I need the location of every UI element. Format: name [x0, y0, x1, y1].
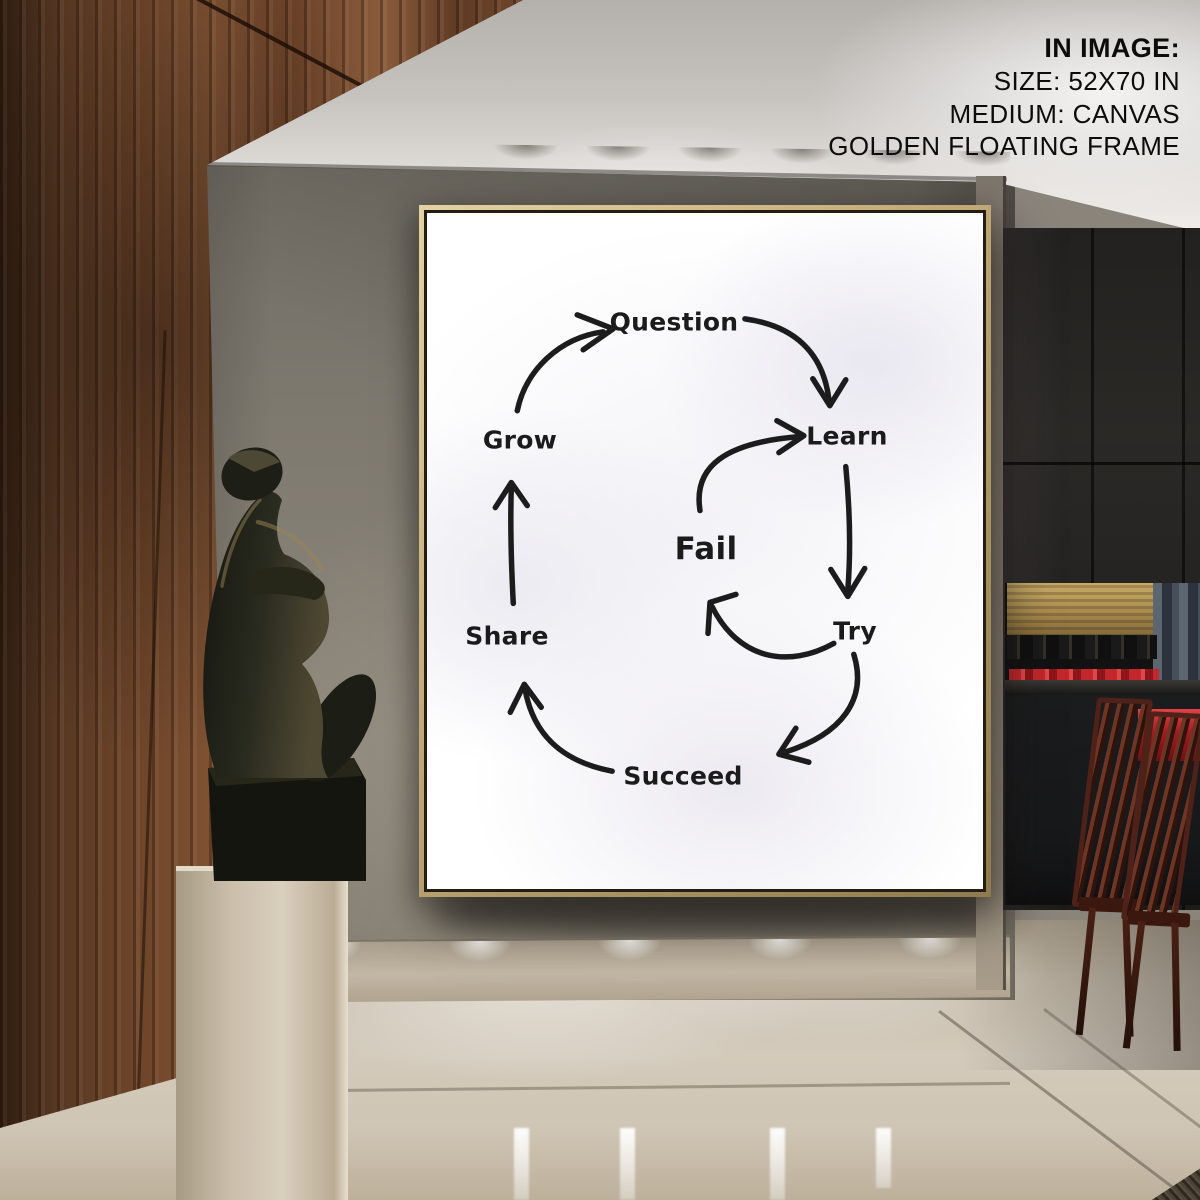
cabinet-seam	[1003, 462, 1200, 465]
floor-light-reflection	[620, 1128, 635, 1200]
shelf-objects	[1007, 635, 1157, 659]
diagram-node-grow: Grow	[483, 426, 557, 455]
red-book-spines	[1009, 669, 1159, 680]
arrow-fail-to-learn	[699, 421, 804, 511]
chair-leg	[1171, 923, 1180, 1051]
arrow-grow-to-question	[517, 315, 613, 411]
sculpture-pedestal	[176, 866, 348, 1200]
diagram-node-fail: Fail	[675, 531, 738, 567]
floor-light-reflection	[514, 1128, 529, 1200]
diagram-node-question: Question	[610, 308, 739, 337]
product-annotation: IN IMAGE: SIZE: 52X70 IN MEDIUM: CANVAS …	[828, 32, 1180, 162]
annotation-frame-line: GOLDEN FLOATING FRAME	[828, 130, 1180, 162]
canvas-print: Question Learn Try Succeed Share Grow Fa…	[427, 213, 983, 889]
arrow-share-to-grow	[495, 483, 527, 604]
annotation-medium-line: MEDIUM: CANVAS	[828, 98, 1180, 130]
arrow-try-to-fail	[708, 594, 834, 656]
diagram-node-succeed: Succeed	[623, 762, 742, 791]
diagram-node-learn: Learn	[806, 422, 887, 451]
arrow-learn-to-try	[831, 467, 865, 597]
bronze-sculpture	[156, 426, 376, 886]
floor-light-reflection	[876, 1128, 891, 1188]
arrow-question-to-learn	[745, 319, 846, 406]
diagram-node-try: Try	[833, 617, 877, 646]
sculpture-body	[203, 492, 329, 778]
gallery-interior-scene: Question Learn Try Succeed Share Grow Fa…	[0, 0, 1200, 1200]
framed-canvas-artwork: Question Learn Try Succeed Share Grow Fa…	[419, 205, 991, 897]
arrow-try-to-succeed	[779, 654, 858, 762]
baseboard-uplights	[235, 935, 1010, 1002]
diagram-node-share: Share	[465, 622, 548, 651]
floor-light-reflection	[770, 1128, 785, 1200]
annotation-title: IN IMAGE:	[828, 32, 1180, 65]
kitchen-counter	[1005, 680, 1200, 696]
annotation-size-line: SIZE: 52X70 IN	[828, 65, 1180, 97]
arrow-succeed-to-share	[510, 684, 612, 771]
